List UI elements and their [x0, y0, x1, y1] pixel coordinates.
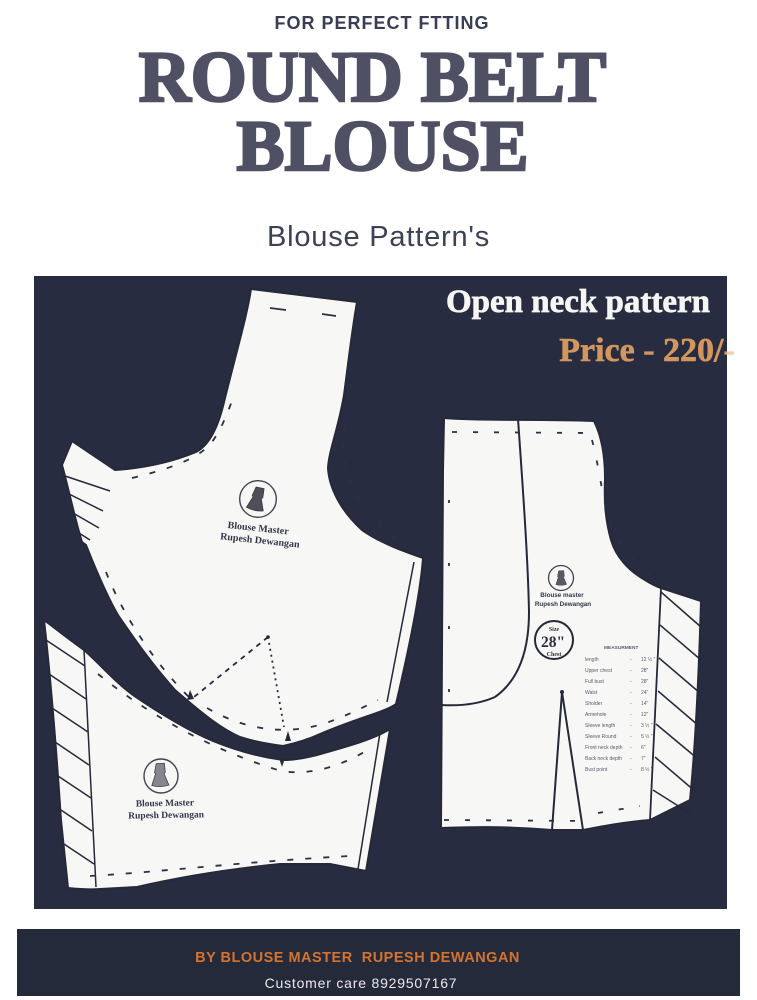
svg-text:3 ½ ": 3 ½ "	[641, 722, 653, 729]
svg-text:14": 14"	[641, 701, 649, 707]
svg-text:Upper chest: Upper chest	[585, 668, 613, 674]
svg-text:Full bust: Full bust	[585, 679, 605, 685]
svg-text:Front neck depth: Front neck depth	[585, 745, 623, 751]
svg-text:Size: Size	[549, 627, 560, 633]
svg-text:Sleeve Round: Sleeve Round	[585, 734, 617, 740]
svg-text:length: length	[585, 657, 599, 663]
svg-text:Blouse master: Blouse master	[540, 592, 584, 599]
svg-text:Blouse Master: Blouse Master	[136, 798, 195, 809]
svg-text:28": 28"	[641, 679, 649, 685]
svg-text:28": 28"	[541, 634, 565, 651]
svg-text:8 ½ ": 8 ½ "	[641, 766, 653, 773]
svg-text:12": 12"	[641, 712, 649, 718]
svg-text:Waist: Waist	[585, 690, 598, 696]
svg-text:Rupesh Dewangan: Rupesh Dewangan	[128, 810, 205, 821]
svg-text:6": 6"	[641, 745, 646, 751]
svg-text:Back neck depth: Back neck depth	[585, 756, 622, 762]
svg-text:Bust point: Bust point	[585, 767, 608, 773]
svg-text:Armehole: Armehole	[585, 712, 607, 718]
svg-text:Rupesh Dewangan: Rupesh Dewangan	[535, 601, 591, 608]
svg-text:Sholder: Sholder	[585, 701, 603, 707]
svg-text:24": 24"	[641, 690, 649, 696]
svg-text:Sleeve length: Sleeve length	[585, 723, 616, 729]
svg-text:7": 7"	[641, 756, 646, 762]
svg-text:5 ½ ": 5 ½ "	[641, 733, 653, 740]
svg-text:28": 28"	[641, 668, 649, 674]
svg-text:Chest: Chest	[547, 652, 562, 658]
svg-text:12 ½ ": 12 ½ "	[641, 656, 656, 663]
svg-text:MEASURMENT: MEASURMENT	[604, 645, 638, 651]
